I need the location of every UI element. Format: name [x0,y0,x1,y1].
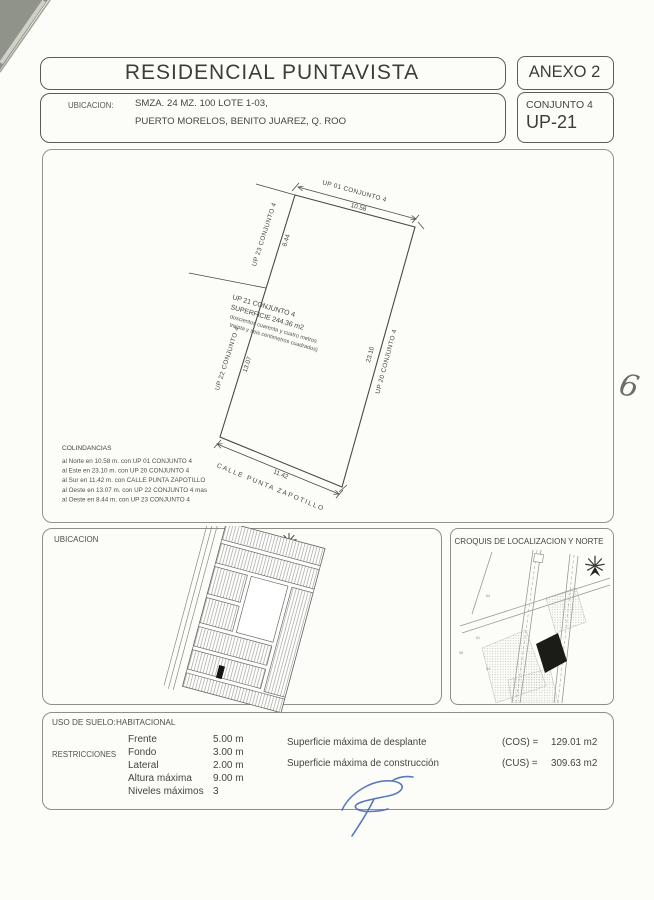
coefficient-key: (COS) = [502,737,538,748]
restriction-value: 3 [213,786,219,797]
restriction-value: 9.00 m [213,773,244,784]
restriction-label: Altura máxima [128,773,192,784]
restriction-label: Niveles máximos [128,786,204,797]
location-line1: SMZA. 24 MZ. 100 LOTE 1-03, [135,98,268,109]
land-use-label: USO DE SUELO: [52,718,116,727]
coefficient-row-cos: Superficie máxima de desplante (COS) = 1… [0,737,654,749]
annex-label: ANEXO 2 [517,63,612,82]
margin-note-text: 6 [616,367,642,405]
coefficient-label: Superficie máxima de construcción [287,758,439,769]
conjunto-label: CONJUNTO 4 [526,99,593,111]
site-plan-panel [42,149,614,523]
coefficient-value: 129.01 m2 [551,737,597,748]
location-label: UBICACION: [68,101,114,110]
document-title: RESIDENCIAL PUNTAVISTA [40,61,504,85]
unit-label: UP-21 [526,112,577,133]
location-map-panel [42,528,442,705]
land-use-value: HABITACIONAL [116,718,175,727]
coefficient-key: (CUS) = [502,758,538,769]
coefficient-value: 309.63 m2 [551,758,597,769]
coefficient-row-cus: Superficie máxima de construcción (CUS) … [0,758,654,770]
restriction-row-altura: Altura máxima 9.00 m [0,773,654,785]
coefficient-label: Superficie máxima de desplante [287,737,426,748]
restriction-row-niveles: Niveles máximos 3 [0,786,654,798]
location-line2: PUERTO MORELOS, BENITO JUAREZ, Q. ROO [135,116,346,127]
location-map-title: UBICACION [54,535,98,544]
croquis-panel [450,528,614,705]
scanned-document-page: RESIDENCIAL PUNTAVISTA ANEXO 2 UBICACION… [0,0,654,900]
